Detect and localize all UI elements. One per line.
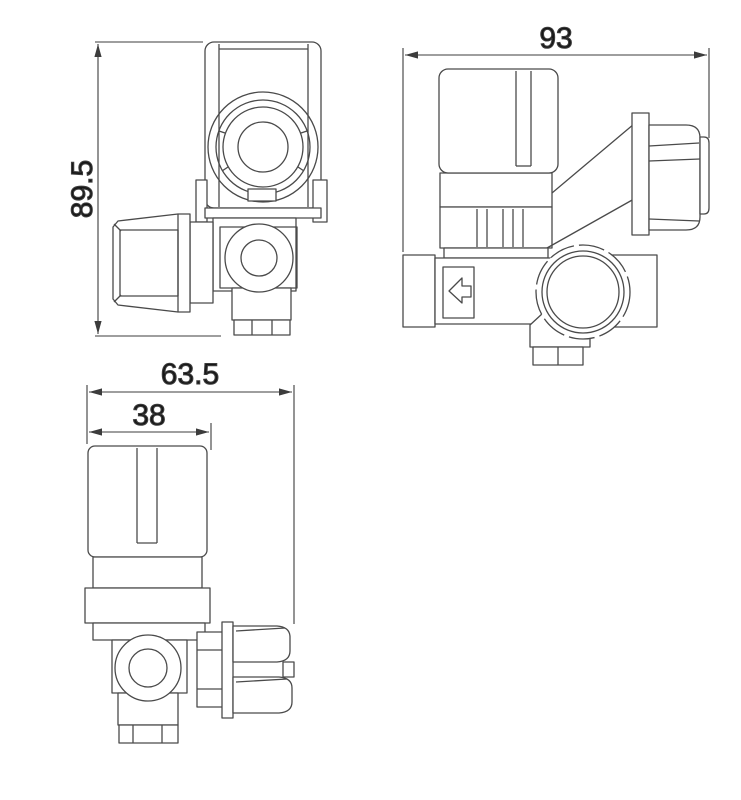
pipe-inlet-end — [403, 255, 435, 327]
outlet-connector-front — [197, 622, 294, 718]
flow-arrow-box — [443, 267, 474, 318]
outlet-connector — [632, 113, 709, 235]
drain-outlet-front — [119, 725, 178, 743]
side-port-front — [112, 635, 187, 743]
bonnet-front — [93, 557, 202, 588]
dim-label-cap-width: 38 — [132, 399, 165, 432]
technical-drawing-page: 89.5 — [0, 0, 741, 800]
connector-flange — [222, 622, 233, 718]
bonnet — [440, 173, 552, 258]
dimension-cap-width-38: 38 — [89, 399, 211, 450]
valve-lower-body — [213, 218, 297, 335]
angled-neck — [547, 124, 634, 248]
cap-front — [88, 446, 207, 557]
valve-technical-drawing: 89.5 — [0, 0, 741, 800]
cap-body — [205, 42, 321, 208]
side-port-circle — [115, 635, 181, 701]
drain-outlet — [234, 320, 290, 335]
flange-band — [85, 588, 210, 623]
body-band — [205, 208, 321, 218]
dim-label-width: 93 — [539, 22, 572, 55]
valve-side-view — [403, 69, 709, 365]
valve-top-view — [113, 42, 327, 335]
knurled-ring — [536, 245, 630, 339]
dim-label-height: 89.5 — [66, 160, 99, 218]
handwheel-tab — [248, 189, 276, 201]
cap-side — [439, 69, 558, 173]
dim-label-overall-width: 63.5 — [161, 358, 219, 391]
valve-front-view — [85, 446, 294, 743]
inlet-connector — [113, 214, 213, 312]
side-port-circle — [225, 224, 293, 292]
